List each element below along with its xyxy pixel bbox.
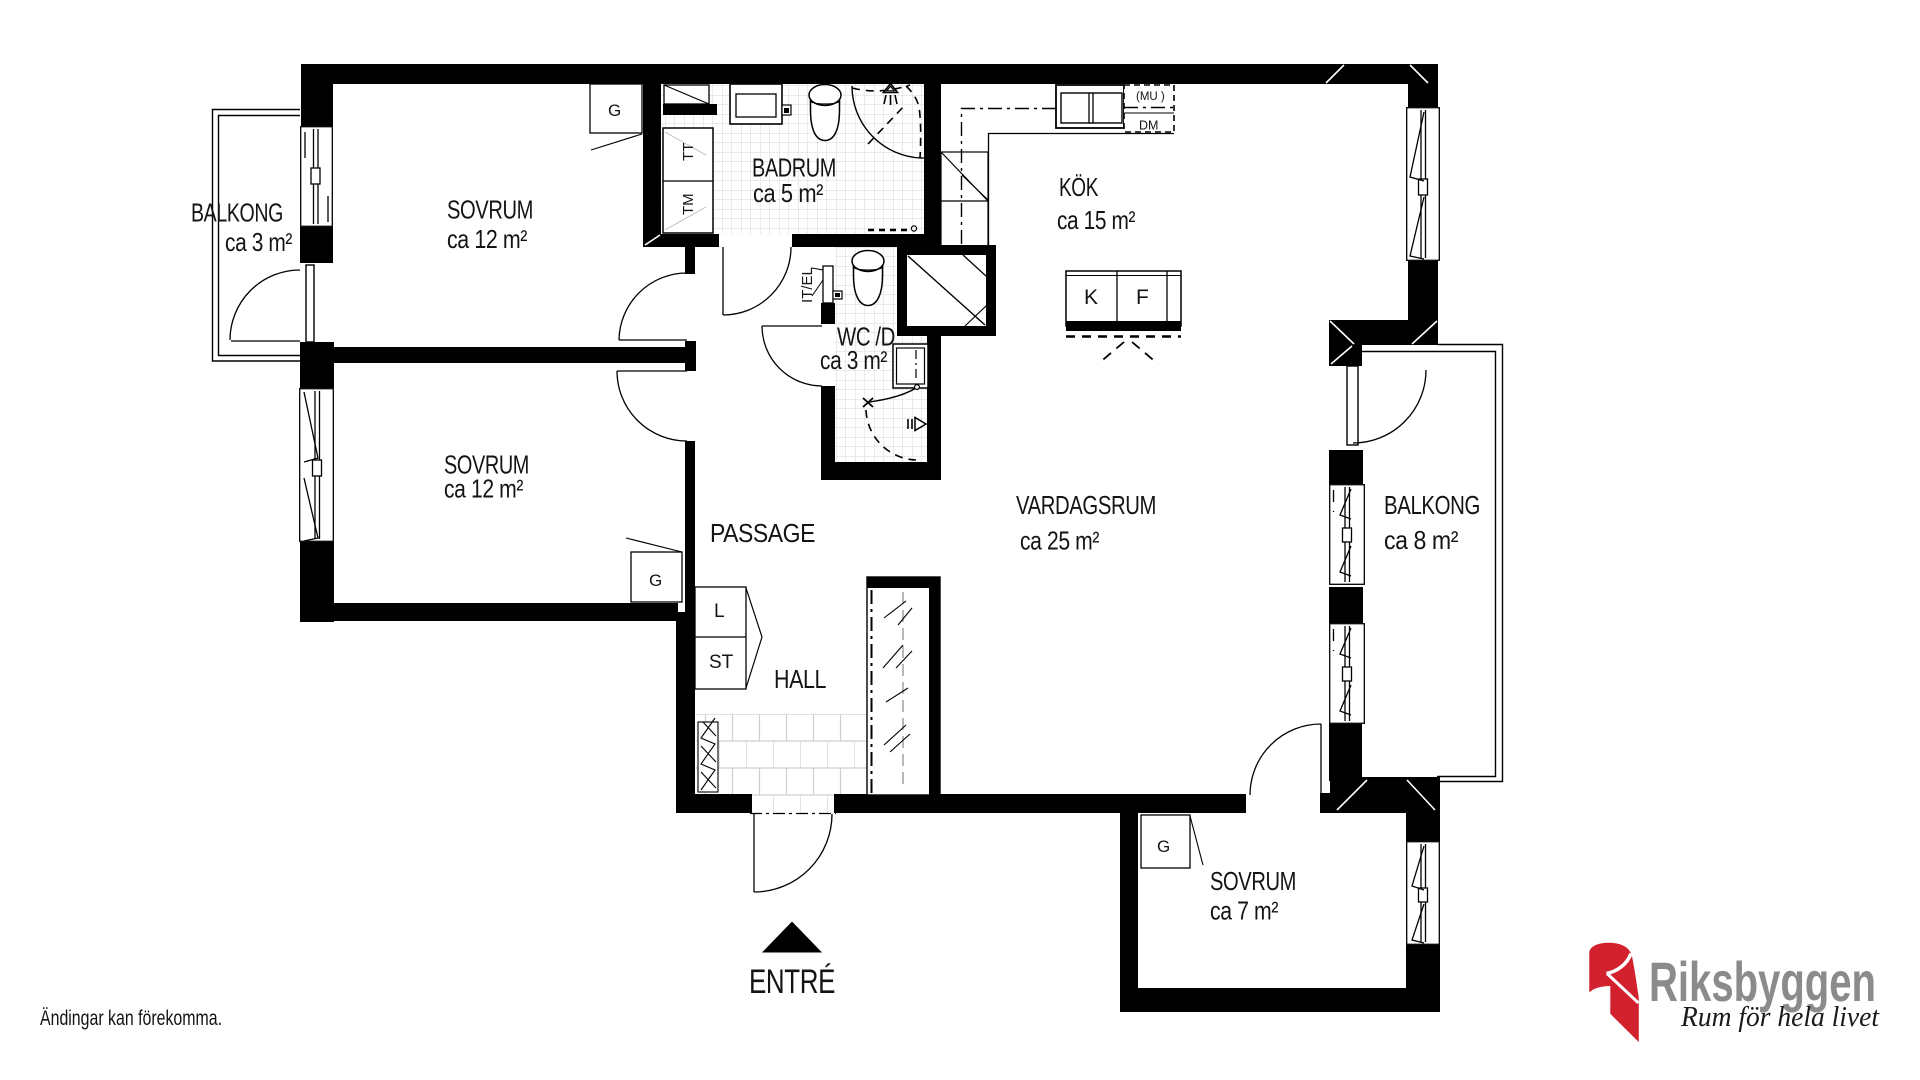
svg-text:SOVRUM: SOVRUM bbox=[447, 195, 533, 225]
svg-text:L: L bbox=[714, 601, 725, 622]
svg-text:ca 12 m²: ca 12 m² bbox=[447, 224, 528, 254]
svg-text:IT/EL: IT/EL bbox=[799, 267, 816, 303]
svg-text:BALKONG: BALKONG bbox=[1384, 490, 1480, 520]
svg-text:ENTRÉ: ENTRÉ bbox=[749, 963, 835, 1001]
svg-text:ca 5 m²: ca 5 m² bbox=[753, 178, 824, 208]
svg-text:ca 8 m²: ca 8 m² bbox=[1384, 525, 1459, 555]
svg-text:ca 3 m²: ca 3 m² bbox=[225, 227, 293, 257]
svg-text:HALL: HALL bbox=[774, 664, 826, 694]
svg-text:ca 3 m²: ca 3 m² bbox=[820, 345, 888, 375]
svg-text:ca 25 m²: ca 25 m² bbox=[1020, 526, 1100, 556]
svg-text:Rum för hela livet: Rum för hela livet bbox=[1680, 1002, 1880, 1033]
svg-text:G: G bbox=[1157, 837, 1170, 856]
svg-text:TT: TT bbox=[680, 143, 697, 161]
svg-text:ST: ST bbox=[709, 652, 734, 673]
svg-text:Ändingar kan förekomma.: Ändingar kan förekomma. bbox=[40, 1007, 222, 1030]
svg-text:DM: DM bbox=[1139, 119, 1158, 133]
svg-text:G: G bbox=[649, 571, 662, 590]
svg-text:ca 15 m²: ca 15 m² bbox=[1057, 205, 1136, 235]
svg-text:ca 12 m²: ca 12 m² bbox=[444, 474, 524, 504]
svg-text:F: F bbox=[1136, 286, 1149, 309]
svg-text:K: K bbox=[1084, 286, 1098, 309]
svg-text:TM: TM bbox=[680, 193, 697, 215]
svg-text:G: G bbox=[608, 101, 621, 120]
svg-text:SOVRUM: SOVRUM bbox=[1210, 866, 1296, 896]
svg-text:ca 7 m²: ca 7 m² bbox=[1210, 896, 1279, 926]
svg-text:(MU ): (MU ) bbox=[1136, 91, 1165, 103]
svg-text:PASSAGE: PASSAGE bbox=[710, 518, 815, 548]
svg-text:BALKONG: BALKONG bbox=[191, 198, 283, 228]
svg-text:KÖK: KÖK bbox=[1059, 172, 1099, 202]
svg-text:VARDAGSRUM: VARDAGSRUM bbox=[1016, 490, 1156, 520]
